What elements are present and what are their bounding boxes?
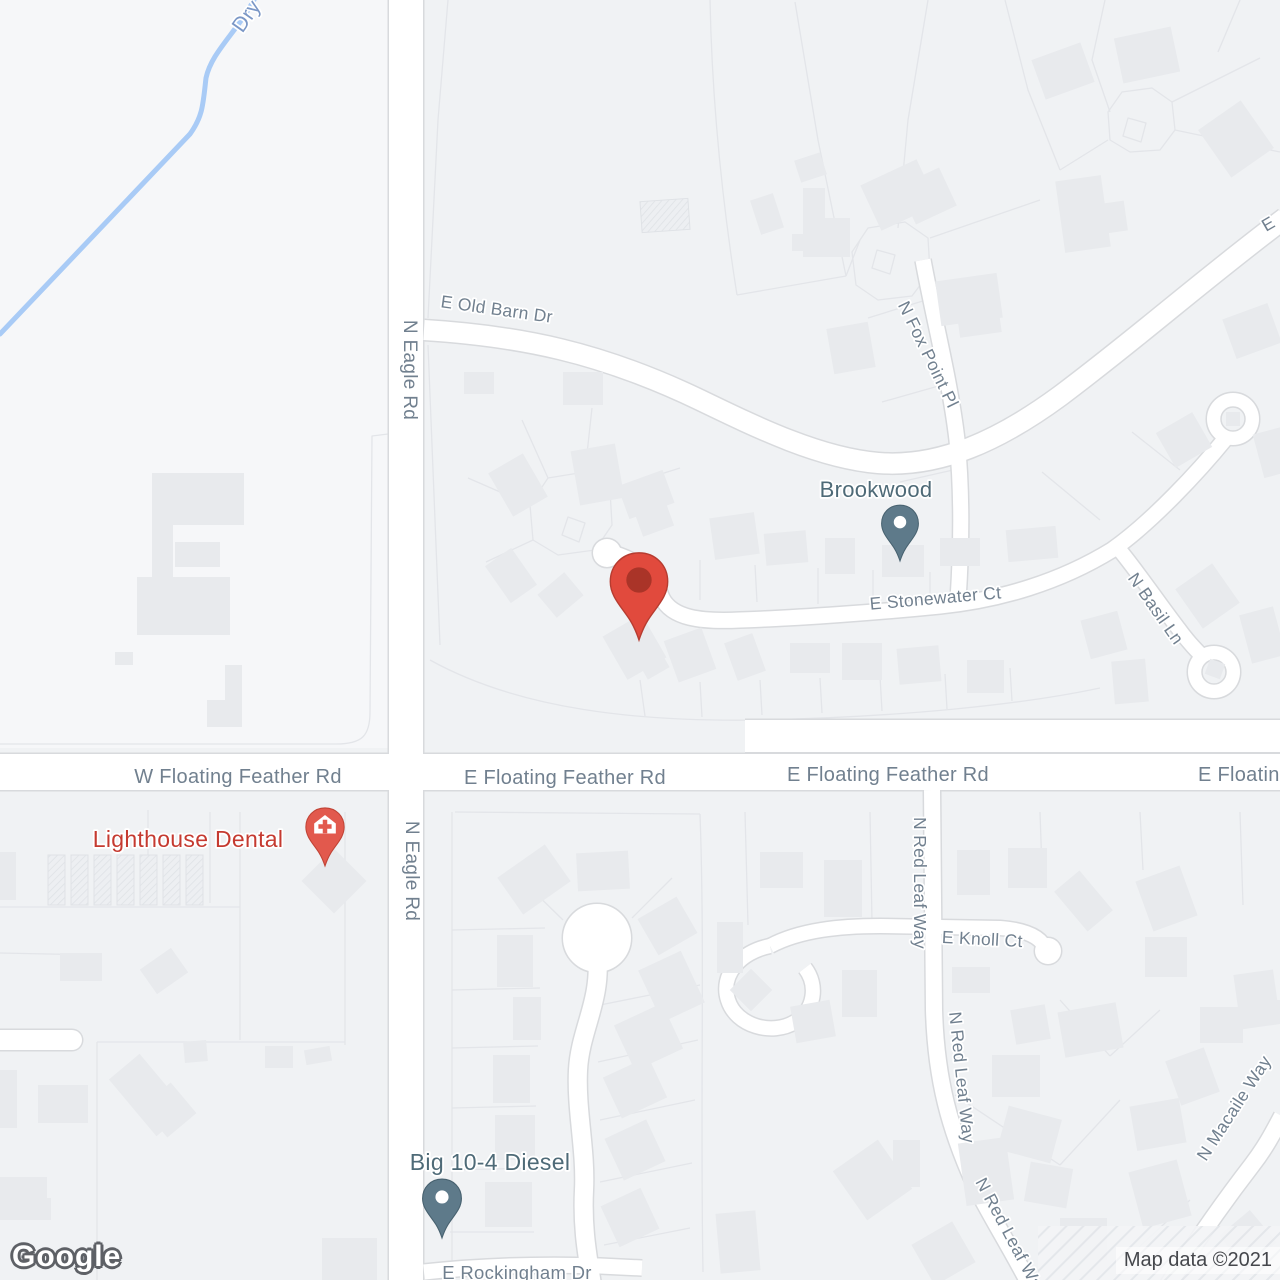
poi-label: Big 10-4 Diesel [410,1149,570,1175]
map-canvas[interactable]: DryN Eagle RdN Eagle RdE Old Barn DrN Fo… [0,0,1280,1280]
street-label: E Floating Feather Rd [464,767,666,789]
street-label: W Floating Feather Rd [134,766,342,788]
map-attribution: Map data ©2021 [1116,1247,1280,1274]
field-parcels-layer [0,0,390,748]
street-label: E Floating Feather Rd [1198,764,1280,786]
street-label: N Eagle Rd [401,821,422,921]
poi-label: Lighthouse Dental [93,826,284,852]
street-label: E Floating Feather Rd [787,764,989,786]
poi-label: Brookwood [820,477,933,502]
street-label: E Knoll Ct [941,927,1023,951]
street-label: N Eagle Rd [399,320,420,420]
street-label: E Rockingham Dr [442,1262,591,1280]
google-logo[interactable]: Google [12,1240,121,1274]
street-label: N Red Leaf Way [910,817,930,949]
map-viewport[interactable]: DryN Eagle RdN Eagle RdE Old Barn DrN Fo… [0,0,1280,1280]
